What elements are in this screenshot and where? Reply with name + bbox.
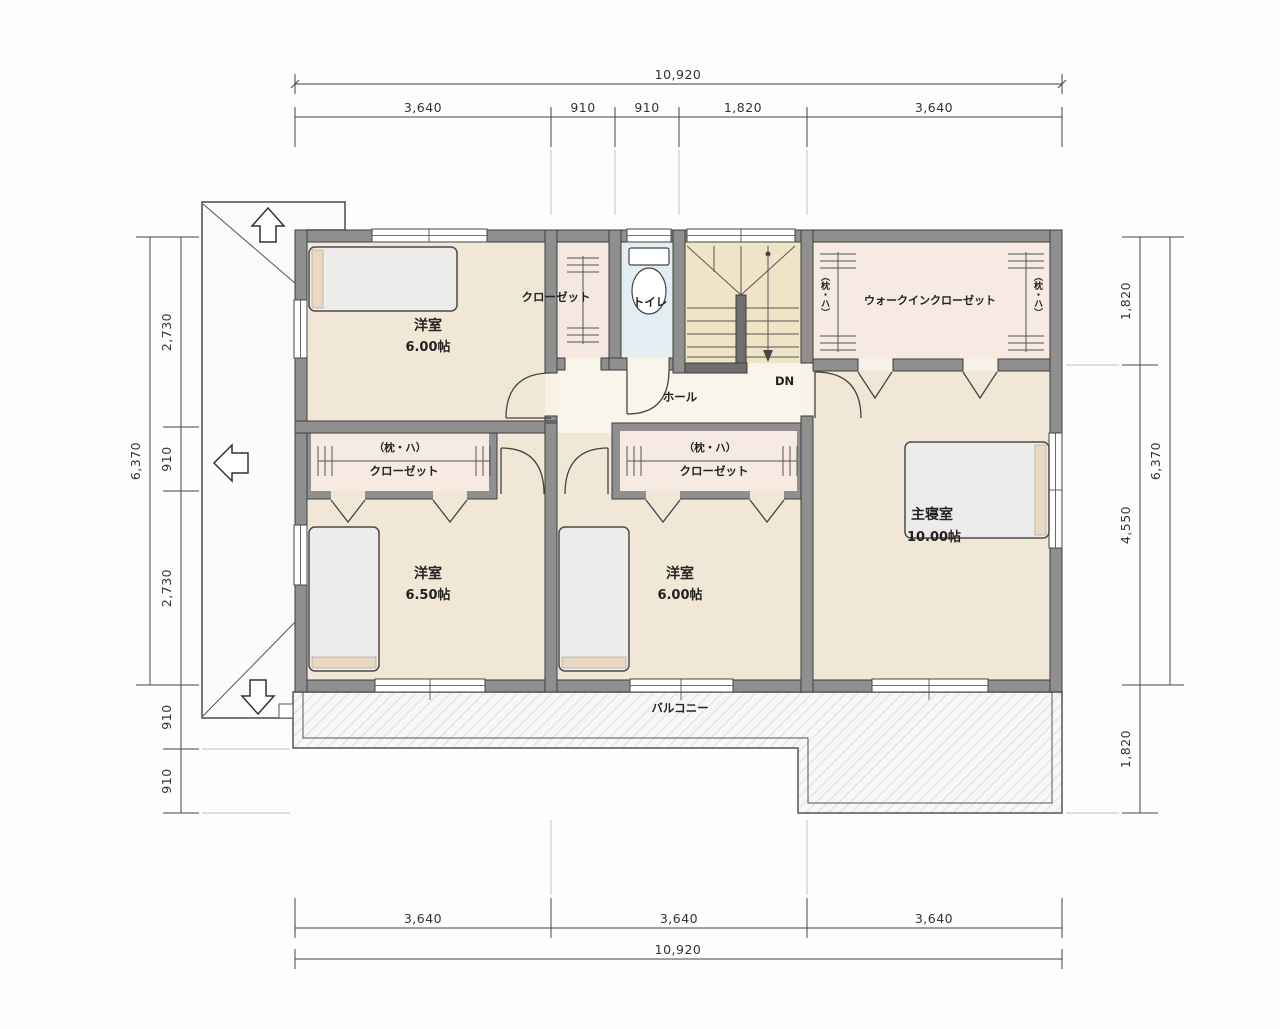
stair-landing-edge: [685, 363, 747, 373]
label-wic-shelf-note-left: （枕・ハ）: [819, 272, 831, 317]
wall-stairs-wic: [801, 230, 813, 363]
wall-wic-bottom-1: [813, 359, 858, 371]
label-master-bedroom-name: 主寝室: [911, 506, 953, 523]
label-closet-a-note: （枕・ハ）: [374, 441, 427, 454]
dim-top-seg-2: 910: [634, 100, 659, 115]
dimensions-top: 10,920 3,640 910 910 1,820 3,640: [291, 67, 1066, 215]
wall-exterior-left: [295, 230, 307, 692]
label-toilet: トイレ: [633, 295, 668, 309]
label-bedroom-top-left-size: 6.00帖: [405, 339, 450, 355]
label-bedroom-bottom-mid-name: 洋室: [666, 565, 694, 582]
closet-b-opening-right: [750, 491, 784, 501]
stair-core-wall: [736, 295, 746, 365]
label-closet-b-name: クローゼット: [680, 464, 749, 478]
label-wic: ウォークインクローゼット: [864, 293, 996, 307]
bed-pillow: [562, 657, 626, 668]
balcony-drain-box: [279, 704, 293, 718]
bed-pillow: [1035, 445, 1046, 535]
wall-hall-master: [801, 416, 813, 692]
dim-right-seg-1: 4,550: [1118, 506, 1133, 544]
dim-left-seg-1: 910: [159, 446, 174, 471]
bed-bedroom-top-left: [309, 247, 457, 311]
label-closet-top: クローゼット: [522, 290, 591, 304]
label-bedroom-bottom-left-size: 6.50帖: [405, 587, 450, 603]
label-bedroom-bottom-mid-size: 6.00帖: [657, 587, 702, 603]
closet-b-opening-left: [646, 491, 680, 501]
toilet-tank-icon: [629, 248, 669, 265]
floor-plan-page: 洋室 6.00帖 クローゼット トイレ ホール DN ウォークインクローゼット …: [0, 0, 1280, 1029]
dim-left-below-0: 910: [159, 704, 174, 729]
bed-bedroom-bottom-left: [309, 527, 379, 671]
closet-a-opening-right: [433, 491, 467, 501]
dim-bottom-seg-0: 3,640: [404, 911, 442, 926]
wall-toilet-stairs: [673, 230, 685, 373]
label-closet-a-name: クローゼット: [370, 464, 439, 478]
label-wic-shelf-note-right: （枕・ハ）: [1032, 272, 1044, 317]
wall-closet-bottom-stub-right: [601, 358, 609, 370]
bed-master-bedroom: [905, 442, 1049, 538]
dim-top-total: 10,920: [655, 67, 702, 82]
dim-top-seg-1: 910: [570, 100, 595, 115]
label-closet-b-note: （枕・ハ）: [684, 441, 737, 454]
dim-right-seg-0: 1,820: [1118, 282, 1133, 320]
dim-top-seg-3: 1,820: [724, 100, 762, 115]
bed-pillow: [312, 250, 323, 308]
wall-closet-bottom-stub-left: [557, 358, 565, 370]
dimensions-right: 1,820 4,550 1,820 6,370: [1066, 237, 1184, 813]
label-master-bedroom-size: 10.00帖: [907, 529, 961, 545]
label-balcony: バルコニー: [651, 701, 708, 715]
dim-left-total: 6,370: [128, 442, 143, 480]
dim-right-total: 6,370: [1148, 442, 1163, 480]
wall-wic-bottom-3: [998, 359, 1050, 371]
dim-left-below-1: 910: [159, 768, 174, 793]
label-bedroom-bottom-left-name: 洋室: [414, 565, 442, 582]
wall-wic-bottom-2: [893, 359, 963, 371]
floor-plan-drawing: 洋室 6.00帖 クローゼット トイレ ホール DN ウォークインクローゼット …: [0, 0, 1280, 1029]
wall-room2-room3-divider: [545, 423, 557, 692]
label-stairs-dn: DN: [775, 374, 794, 388]
dimensions-bottom: 3,640 3,640 3,640 10,920: [295, 820, 1062, 969]
bed-bedroom-bottom-mid: [559, 527, 629, 671]
dim-left-seg-2: 2,730: [159, 569, 174, 607]
label-hall: ホール: [663, 390, 698, 404]
dim-bottom-seg-2: 3,640: [915, 911, 953, 926]
bed-pillow: [312, 657, 376, 668]
dim-left-seg-0: 2,730: [159, 313, 174, 351]
dim-top-seg-4: 3,640: [915, 100, 953, 115]
wall-closet-toilet: [609, 230, 621, 370]
wall-toilet-bottom-left: [609, 358, 627, 370]
label-bedroom-top-left-name: 洋室: [414, 317, 442, 334]
dim-bottom-total: 10,920: [655, 942, 702, 957]
closet-a-opening-left: [331, 491, 365, 501]
dim-top-seg-0: 3,640: [404, 100, 442, 115]
dim-right-below-0: 1,820: [1118, 730, 1133, 768]
wall-bedroom1-bottom: [295, 421, 557, 433]
dim-bottom-seg-1: 3,640: [660, 911, 698, 926]
